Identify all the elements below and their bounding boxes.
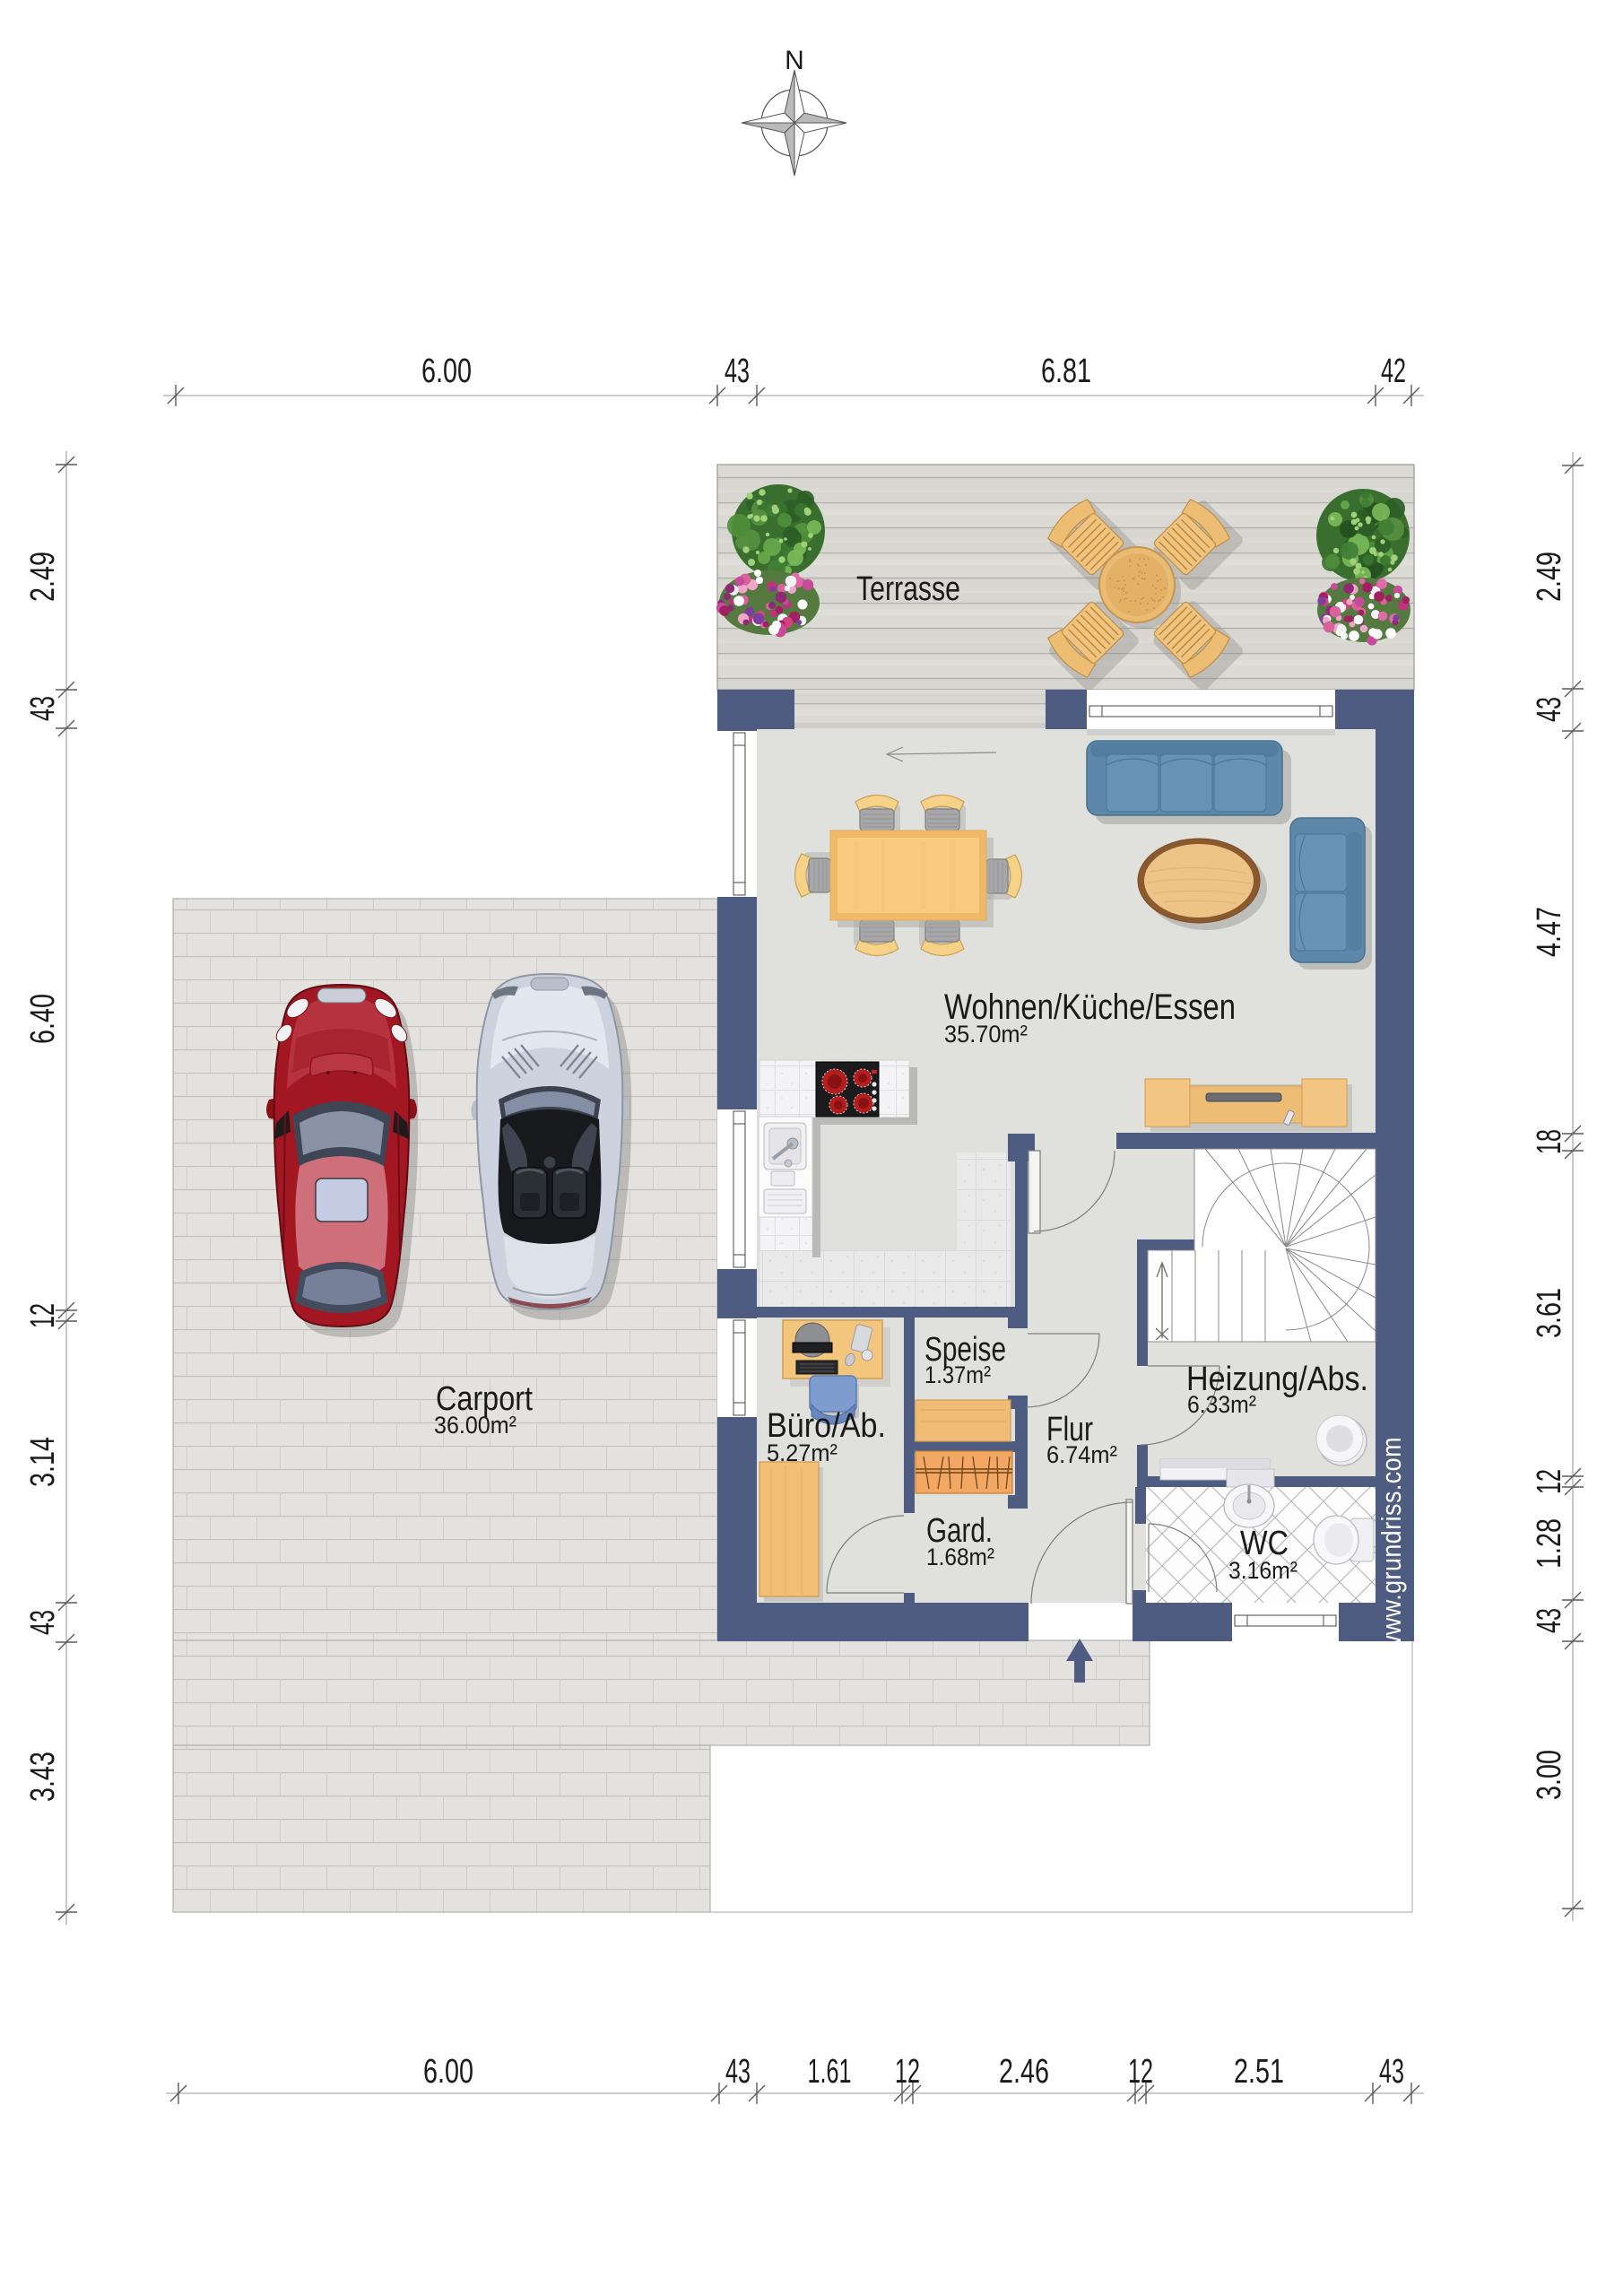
svg-text:2.51: 2.51 <box>1234 2053 1284 2091</box>
svg-text:18: 18 <box>1531 1129 1568 1154</box>
svg-text:6.81: 6.81 <box>1041 352 1091 390</box>
svg-text:6.00: 6.00 <box>423 2053 473 2091</box>
svg-text:1.68m²: 1.68m² <box>926 1544 994 1570</box>
svg-text:6.40: 6.40 <box>24 994 62 1044</box>
svg-text:43: 43 <box>24 1610 62 1635</box>
svg-text:43: 43 <box>725 352 750 390</box>
svg-text:12: 12 <box>24 1303 62 1328</box>
svg-text:2.49: 2.49 <box>1531 552 1568 602</box>
svg-text:Terrasse: Terrasse <box>856 570 960 608</box>
svg-text:35.70m²: 35.70m² <box>944 1021 1028 1048</box>
svg-text:2.46: 2.46 <box>999 2053 1049 2091</box>
svg-text:1.37m²: 1.37m² <box>924 1361 991 1388</box>
svg-text:1.61: 1.61 <box>808 2053 852 2091</box>
svg-text:36.00m²: 36.00m² <box>434 1412 516 1439</box>
svg-text:43: 43 <box>1531 697 1568 722</box>
svg-text:43: 43 <box>1531 1608 1568 1633</box>
svg-text:3.00: 3.00 <box>1531 1750 1568 1800</box>
svg-text:12: 12 <box>895 2053 920 2091</box>
svg-text:43: 43 <box>1379 2053 1404 2091</box>
svg-text:12: 12 <box>1531 1469 1568 1494</box>
svg-text:6.74m²: 6.74m² <box>1046 1441 1117 1468</box>
svg-text:42: 42 <box>1381 352 1406 390</box>
svg-text:3.61: 3.61 <box>1531 1288 1568 1338</box>
svg-text:www.grundriss.com: www.grundriss.com <box>1376 1437 1407 1654</box>
svg-text:12: 12 <box>1128 2053 1153 2091</box>
svg-text:2.49: 2.49 <box>24 552 62 602</box>
svg-text:43: 43 <box>725 2053 751 2091</box>
svg-text:3.14: 3.14 <box>24 1437 62 1487</box>
svg-text:1.28: 1.28 <box>1531 1518 1568 1569</box>
svg-text:3.16m²: 3.16m² <box>1228 1557 1298 1584</box>
svg-text:6.00: 6.00 <box>421 352 472 390</box>
svg-text:43: 43 <box>24 696 62 721</box>
svg-text:3.43: 3.43 <box>24 1752 62 1802</box>
svg-text:4.47: 4.47 <box>1531 907 1568 957</box>
svg-text:6.33m²: 6.33m² <box>1187 1391 1256 1418</box>
svg-text:5.27m²: 5.27m² <box>767 1439 838 1466</box>
